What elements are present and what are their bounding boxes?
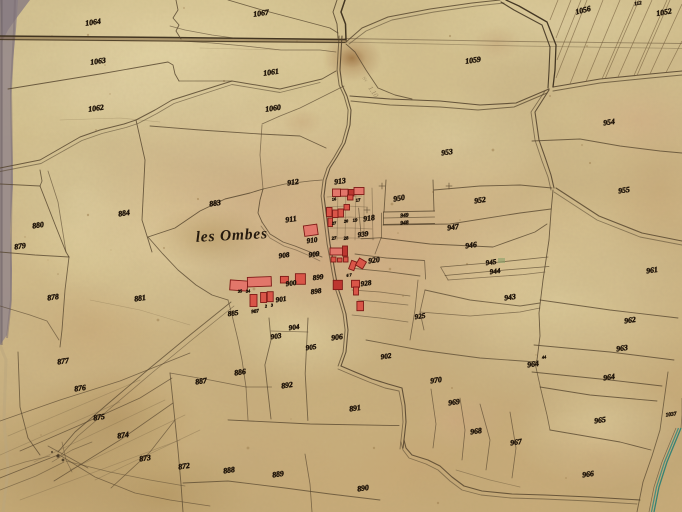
svg-text:920: 920	[368, 255, 381, 266]
svg-text:890: 890	[357, 483, 370, 494]
svg-text:886: 886	[234, 367, 247, 378]
svg-text:966: 966	[582, 469, 595, 480]
svg-text:891: 891	[349, 403, 362, 414]
svg-text:952: 952	[474, 195, 487, 206]
svg-text:889: 889	[272, 469, 285, 480]
svg-text:970: 970	[430, 375, 443, 386]
svg-text:874: 874	[117, 430, 130, 441]
svg-text:879: 879	[14, 241, 27, 252]
svg-text:875: 875	[93, 412, 106, 423]
svg-text:905: 905	[305, 343, 317, 352]
svg-text:925: 925	[414, 312, 426, 321]
svg-text:965: 965	[594, 415, 607, 426]
svg-text:880: 880	[32, 220, 45, 231]
svg-text:954: 954	[603, 117, 616, 128]
svg-text:884: 884	[118, 208, 131, 219]
svg-text:885: 885	[227, 309, 239, 318]
svg-text:904: 904	[288, 323, 300, 332]
svg-text:969: 969	[448, 397, 461, 408]
svg-text:911: 911	[285, 214, 298, 224]
svg-text:964: 964	[527, 359, 540, 370]
svg-text:953: 953	[441, 147, 454, 158]
svg-text:948: 948	[400, 220, 409, 227]
svg-text:903: 903	[270, 332, 282, 341]
svg-text:872: 872	[178, 461, 191, 472]
svg-text:955: 955	[618, 185, 631, 196]
svg-text:901: 901	[275, 295, 287, 304]
svg-text:899: 899	[312, 273, 324, 282]
svg-text:883: 883	[209, 198, 222, 209]
svg-text:902: 902	[380, 352, 392, 361]
svg-text:946: 946	[465, 240, 478, 251]
svg-text:873: 873	[139, 453, 152, 464]
svg-text:909: 909	[308, 250, 320, 259]
svg-text:907: 907	[251, 308, 260, 315]
svg-text:943: 943	[504, 292, 517, 303]
svg-text:962: 962	[624, 315, 637, 326]
svg-text:939: 939	[357, 230, 369, 239]
svg-text:34: 34	[245, 288, 251, 294]
svg-text:912: 912	[287, 177, 300, 188]
svg-text:928: 928	[360, 279, 372, 288]
svg-text:906: 906	[331, 332, 344, 343]
svg-text:900: 900	[285, 279, 297, 288]
svg-text:944: 944	[489, 267, 501, 276]
svg-text:35: 35	[237, 288, 243, 294]
svg-text:913: 913	[334, 176, 347, 187]
svg-text:910: 910	[306, 236, 318, 245]
svg-text:963: 963	[616, 343, 629, 354]
svg-text:961: 961	[646, 265, 659, 276]
svg-text:918: 918	[363, 213, 376, 224]
svg-text:949: 949	[400, 213, 409, 220]
svg-text:44: 44	[541, 354, 547, 360]
svg-text:878: 878	[47, 292, 60, 303]
svg-text:888: 888	[223, 465, 236, 476]
svg-text:892: 892	[281, 380, 294, 391]
svg-text:876: 876	[74, 383, 87, 394]
svg-text:945: 945	[485, 258, 497, 267]
svg-text:908: 908	[278, 251, 290, 260]
svg-text:881: 881	[134, 293, 147, 304]
svg-text:968: 968	[470, 426, 483, 437]
svg-text:964: 964	[603, 372, 616, 383]
svg-text:898: 898	[310, 287, 322, 296]
